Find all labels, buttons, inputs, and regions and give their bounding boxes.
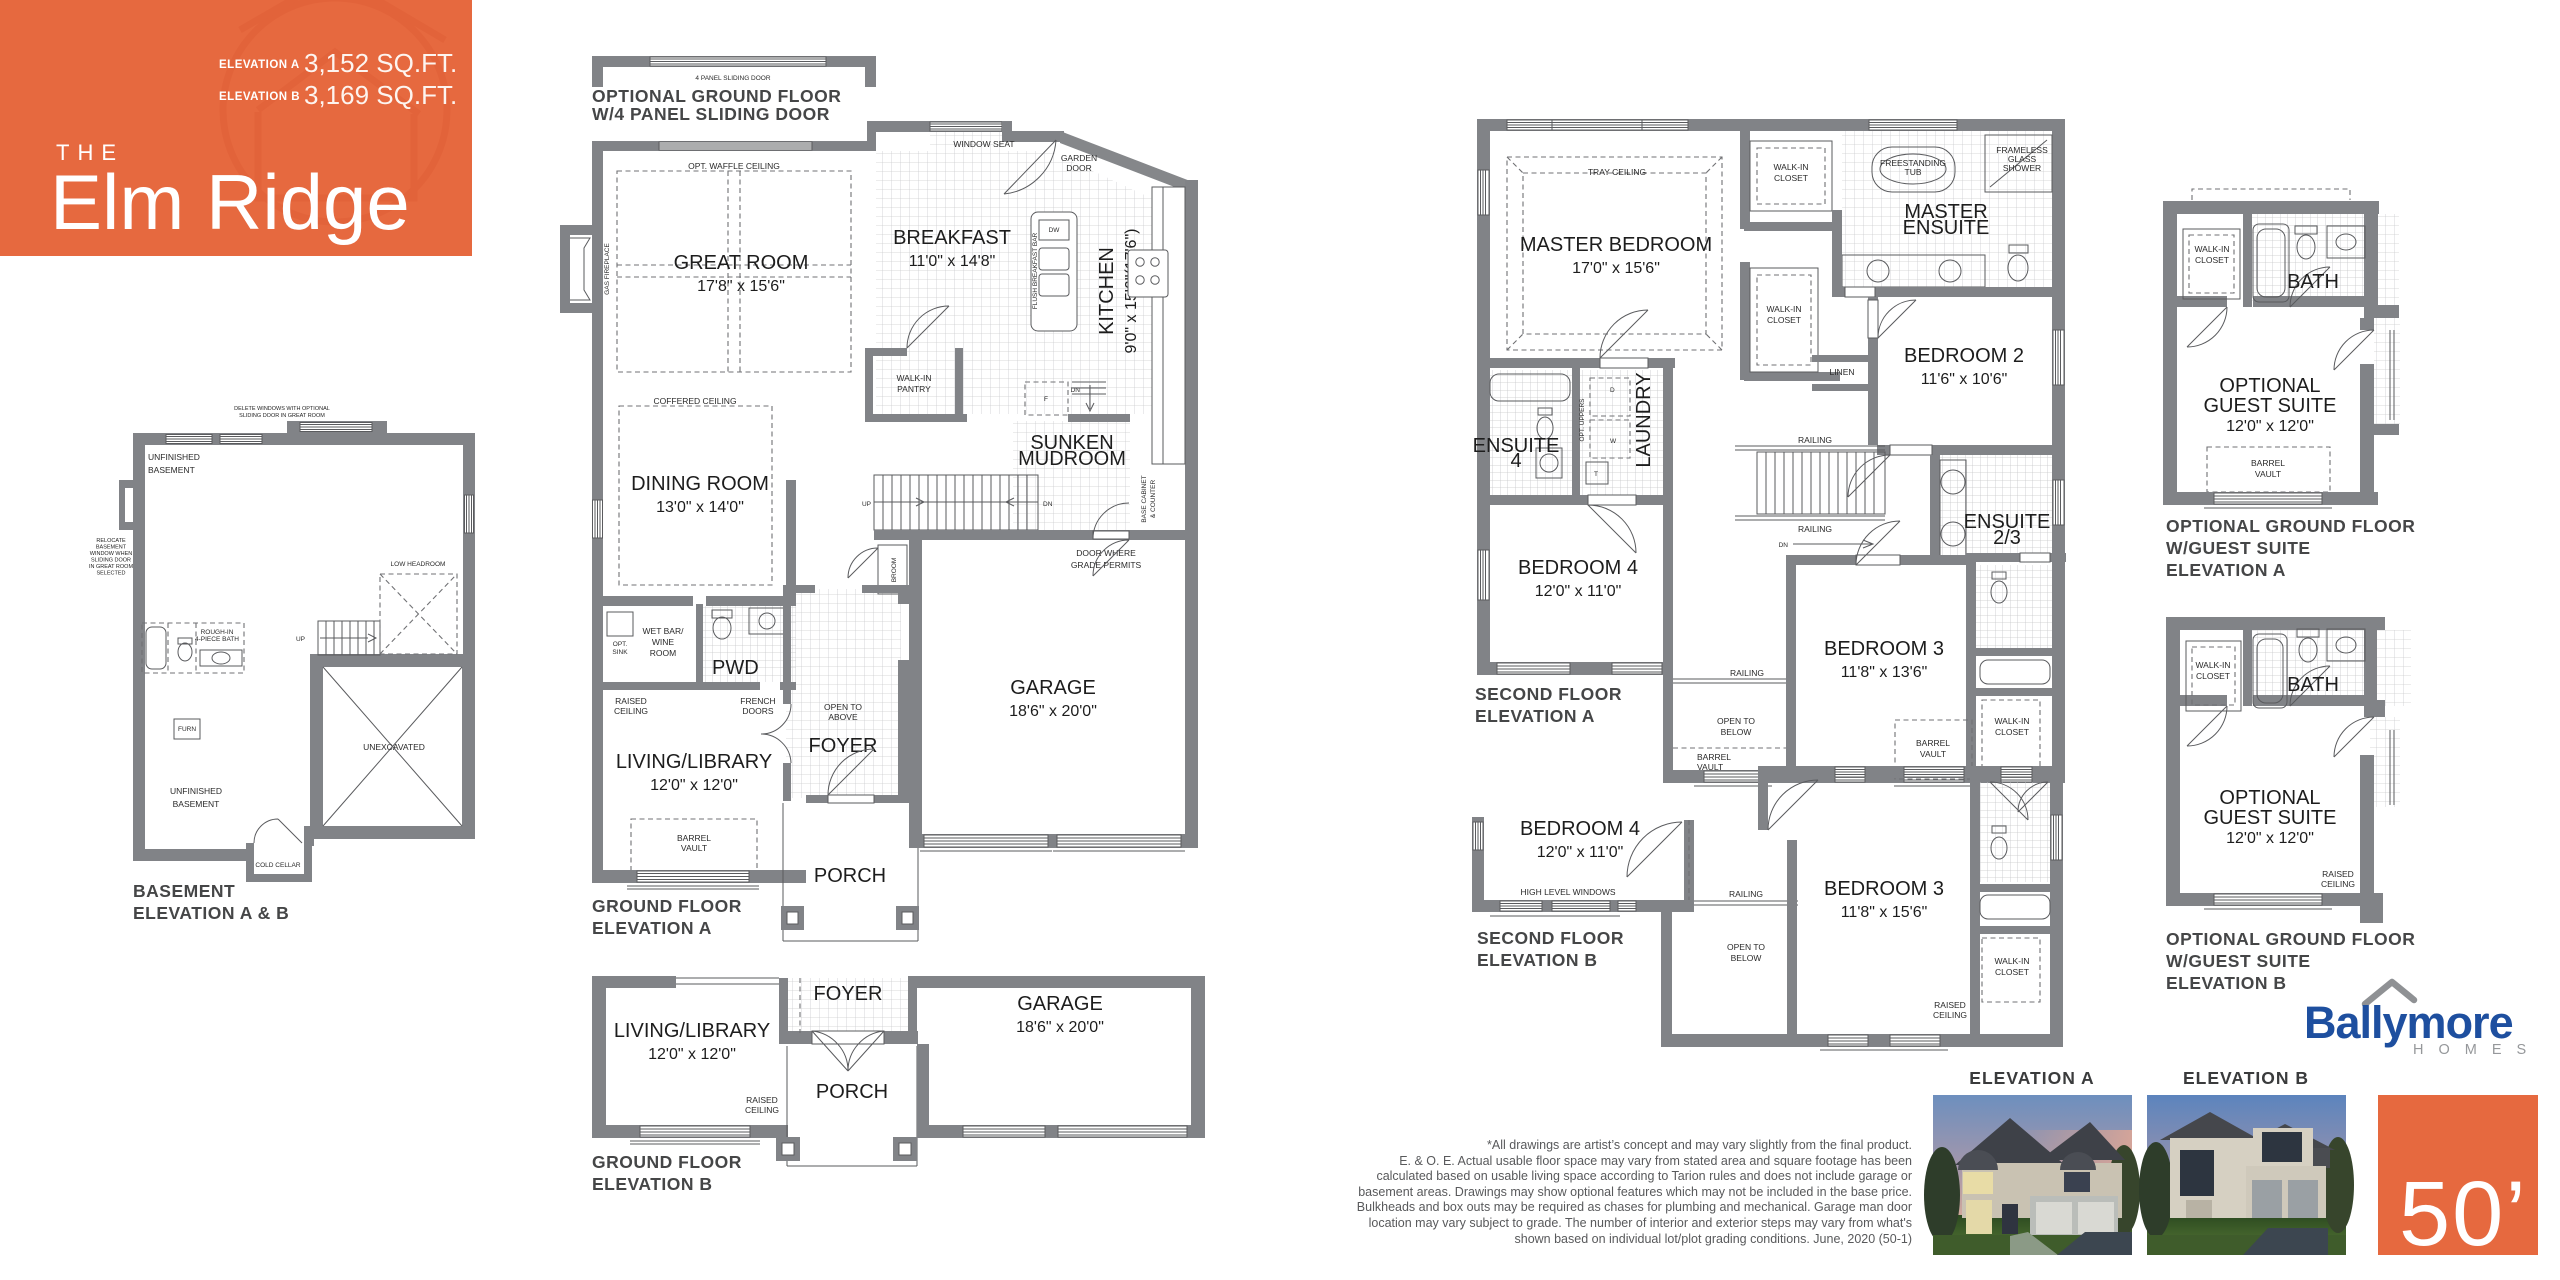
svg-text:BEDROOM 2: BEDROOM 2	[1904, 345, 2024, 367]
svg-text:OPTIONAL GROUND FLOOR: OPTIONAL GROUND FLOOR	[2166, 516, 2415, 536]
svg-text:CEILING: CEILING	[745, 1105, 779, 1115]
svg-text:BROOM: BROOM	[891, 558, 898, 583]
svg-text:BELOW: BELOW	[1731, 953, 1762, 963]
svg-text:BEDROOM 4: BEDROOM 4	[1518, 557, 1638, 579]
svg-text:RAILING: RAILING	[1798, 435, 1832, 445]
svg-text:COFFERED CEILING: COFFERED CEILING	[653, 396, 736, 406]
svg-text:WALK-IN: WALK-IN	[1994, 716, 2029, 726]
svg-text:WALK-IN: WALK-IN	[1766, 304, 1801, 314]
svg-text:BARREL: BARREL	[1697, 752, 1731, 762]
svg-text:LIVING/LIBRARY: LIVING/LIBRARY	[614, 1020, 770, 1042]
svg-text:WINDOW WHEN: WINDOW WHEN	[90, 551, 132, 557]
svg-text:RAISED: RAISED	[615, 696, 647, 706]
svg-text:CLOSET: CLOSET	[1995, 727, 2029, 737]
svg-text:SECOND FLOOR: SECOND FLOOR	[1475, 684, 1622, 704]
svg-text:BEDROOM 3: BEDROOM 3	[1824, 878, 1944, 900]
svg-text:RAILING: RAILING	[1730, 668, 1764, 678]
svg-text:D: D	[1610, 387, 1615, 394]
svg-text:BATH: BATH	[2287, 271, 2339, 293]
svg-text:ENSUITE: ENSUITE	[1903, 217, 1990, 239]
svg-text:BATH: BATH	[2287, 674, 2339, 696]
svg-text:11'6" x 10'6": 11'6" x 10'6"	[1921, 371, 2008, 388]
svg-text:MASTER BEDROOM: MASTER BEDROOM	[1520, 234, 1712, 256]
svg-text:WALK-IN: WALK-IN	[1773, 162, 1808, 172]
svg-text:GROUND FLOOR: GROUND FLOOR	[592, 896, 742, 916]
svg-text:T: T	[1594, 471, 1598, 478]
svg-text:WALK-IN: WALK-IN	[2195, 660, 2230, 670]
svg-text:CLOSET: CLOSET	[2195, 255, 2229, 265]
svg-text:SELECTED: SELECTED	[96, 571, 125, 577]
svg-text:UP: UP	[862, 501, 871, 508]
svg-text:12'0" x 12'0": 12'0" x 12'0"	[648, 1046, 736, 1063]
svg-text:ELEVATION B: ELEVATION B	[1477, 950, 1598, 970]
svg-text:VAULT: VAULT	[2255, 469, 2281, 479]
svg-text:BASEMENT: BASEMENT	[173, 799, 220, 809]
svg-text:GROUND FLOOR: GROUND FLOOR	[592, 1152, 742, 1172]
svg-text:ABOVE: ABOVE	[828, 712, 858, 722]
svg-text:OPTIONAL: OPTIONAL	[2219, 375, 2320, 397]
svg-text:4 PANEL SLIDING DOOR: 4 PANEL SLIDING DOOR	[695, 75, 770, 82]
svg-text:ROOM: ROOM	[650, 648, 676, 658]
svg-text:UNEXCAVATED: UNEXCAVATED	[363, 742, 425, 752]
svg-text:ROUGH-IN: ROUGH-IN	[201, 629, 234, 636]
svg-text:OPT. WAFFLE CEILING: OPT. WAFFLE CEILING	[688, 161, 780, 171]
svg-text:UNFINISHED: UNFINISHED	[170, 786, 222, 796]
svg-text:17'0" x 15'6": 17'0" x 15'6"	[1572, 260, 1660, 277]
svg-text:ELEVATION A: ELEVATION A	[1475, 706, 1595, 726]
svg-text:HIGH LEVEL WINDOWS: HIGH LEVEL WINDOWS	[1520, 887, 1615, 897]
svg-text:Ballymore: Ballymore	[2304, 997, 2513, 1048]
svg-text:OPTIONAL: OPTIONAL	[2219, 787, 2320, 809]
svg-text:MUDROOM: MUDROOM	[1018, 448, 1126, 470]
svg-text:SHOWER: SHOWER	[2003, 163, 2041, 173]
svg-text:TUB: TUB	[1905, 167, 1922, 177]
svg-text:17'8" x 15'6": 17'8" x 15'6"	[697, 278, 785, 295]
svg-text:CLOSET: CLOSET	[1995, 967, 2029, 977]
svg-text:LINEN: LINEN	[1829, 367, 1854, 377]
svg-text:CEILING: CEILING	[2321, 879, 2355, 889]
svg-text:GARAGE: GARAGE	[1010, 677, 1096, 699]
svg-text:W/GUEST SUITE: W/GUEST SUITE	[2166, 951, 2311, 971]
svg-text:2/3: 2/3	[1993, 527, 2021, 549]
svg-text:BASEMENT: BASEMENT	[96, 545, 127, 551]
svg-text:11'8" x 13'6": 11'8" x 13'6"	[1841, 664, 1928, 681]
svg-text:COLD CELLAR: COLD CELLAR	[255, 862, 300, 869]
svg-text:HOMES: HOMES	[2413, 1042, 2541, 1058]
svg-text:DINING ROOM: DINING ROOM	[631, 473, 769, 495]
svg-text:DOOR: DOOR	[1066, 163, 1092, 173]
svg-text:FOYER: FOYER	[809, 735, 878, 757]
svg-text:4-PIECE BATH: 4-PIECE BATH	[195, 636, 239, 643]
svg-text:12'0" x 12'0": 12'0" x 12'0"	[650, 777, 738, 794]
svg-text:11'0" x 14'8": 11'0" x 14'8"	[909, 253, 996, 270]
svg-text:WALK-IN: WALK-IN	[2194, 244, 2229, 254]
svg-text:GAS FIREPLACE: GAS FIREPLACE	[604, 243, 611, 295]
svg-text:OPT. UPPERS: OPT. UPPERS	[1579, 398, 1586, 442]
svg-text:FLUSH BREAKFAST BAR: FLUSH BREAKFAST BAR	[1032, 232, 1039, 309]
svg-text:PWD: PWD	[712, 657, 759, 679]
svg-text:CLOSET: CLOSET	[1774, 173, 1808, 183]
svg-text:WALK-IN: WALK-IN	[1994, 956, 2029, 966]
svg-text:OPEN TO: OPEN TO	[824, 702, 862, 712]
svg-text:GARAGE: GARAGE	[1017, 993, 1103, 1015]
svg-text:BARREL: BARREL	[677, 833, 711, 843]
svg-text:RAISED: RAISED	[746, 1095, 778, 1105]
svg-text:OPEN TO: OPEN TO	[1717, 716, 1755, 726]
svg-text:& COUNTER: & COUNTER	[1150, 480, 1157, 519]
svg-text:OPEN TO: OPEN TO	[1727, 942, 1765, 952]
svg-text:VAULT: VAULT	[1697, 762, 1723, 772]
svg-text:WINE: WINE	[652, 637, 675, 647]
svg-text:12'0" x 11'0": 12'0" x 11'0"	[1535, 583, 1622, 600]
svg-text:SINK: SINK	[612, 649, 628, 656]
svg-text:FOYER: FOYER	[814, 983, 883, 1005]
svg-text:CEILING: CEILING	[1933, 1010, 1967, 1020]
svg-text:4: 4	[1510, 450, 1521, 472]
svg-text:ELEVATION B: ELEVATION B	[2183, 1068, 2309, 1088]
svg-text:18'6" x 20'0": 18'6" x 20'0"	[1016, 1019, 1104, 1036]
svg-text:GUEST SUITE: GUEST SUITE	[2204, 395, 2337, 417]
svg-text:CLOSET: CLOSET	[2196, 671, 2230, 681]
svg-text:VAULT: VAULT	[681, 843, 707, 853]
svg-text:GARDEN: GARDEN	[1061, 153, 1097, 163]
svg-text:FRENCH: FRENCH	[740, 696, 775, 706]
svg-text:BEDROOM 3: BEDROOM 3	[1824, 638, 1944, 660]
svg-text:DOOR WHERE: DOOR WHERE	[1076, 548, 1136, 558]
svg-text:RAILING: RAILING	[1798, 524, 1832, 534]
svg-text:SLIDING DOOR: SLIDING DOOR	[91, 558, 131, 564]
svg-text:18'6" x 20'0": 18'6" x 20'0"	[1009, 703, 1097, 720]
svg-text:W: W	[1610, 438, 1617, 445]
svg-text:GREAT ROOM: GREAT ROOM	[674, 252, 809, 274]
svg-text:LIVING/LIBRARY: LIVING/LIBRARY	[616, 751, 772, 773]
svg-text:12'0" x 12'0": 12'0" x 12'0"	[2226, 418, 2314, 435]
svg-text:50’: 50’	[2399, 1163, 2528, 1265]
svg-text:RAILING: RAILING	[1729, 889, 1763, 899]
svg-text:TRAY CEILING: TRAY CEILING	[1588, 167, 1646, 177]
svg-text:SECOND FLOOR: SECOND FLOOR	[1477, 928, 1624, 948]
svg-text:RELOCATE: RELOCATE	[96, 538, 126, 544]
svg-text:SLIDING DOOR IN GREAT ROOM: SLIDING DOOR IN GREAT ROOM	[239, 413, 325, 419]
svg-text:WET BAR/: WET BAR/	[643, 626, 685, 636]
svg-text:RAISED: RAISED	[2322, 869, 2354, 879]
svg-text:BELOW: BELOW	[1721, 727, 1752, 737]
svg-text:ELEVATION B: ELEVATION B	[2166, 973, 2287, 993]
svg-text:OPT.: OPT.	[613, 641, 628, 648]
svg-text:PORCH: PORCH	[816, 1081, 888, 1103]
svg-text:UP: UP	[296, 636, 305, 643]
svg-text:ELEVATION A: ELEVATION A	[592, 918, 712, 938]
svg-text:DN: DN	[1779, 542, 1789, 549]
svg-text:F: F	[1044, 396, 1048, 403]
svg-text:WINDOW SEAT: WINDOW SEAT	[953, 139, 1014, 149]
svg-text:ELEVATION A & B: ELEVATION A & B	[133, 903, 289, 923]
svg-text:IN GREAT ROOM: IN GREAT ROOM	[89, 564, 134, 570]
svg-text:BARREL: BARREL	[2251, 458, 2285, 468]
svg-text:BEDROOM 4: BEDROOM 4	[1520, 818, 1640, 840]
svg-text:12'0" x 12'0": 12'0" x 12'0"	[2226, 830, 2314, 847]
svg-text:PORCH: PORCH	[814, 865, 886, 887]
svg-text:BARREL: BARREL	[1916, 738, 1950, 748]
svg-text:OPTIONAL GROUND FLOOR: OPTIONAL GROUND FLOOR	[2166, 929, 2415, 949]
svg-text:UNFINISHED: UNFINISHED	[148, 452, 200, 462]
svg-text:ELEVATION B: ELEVATION B	[592, 1174, 713, 1194]
svg-text:BASE CABINET: BASE CABINET	[1141, 475, 1148, 522]
svg-text:BASEMENT: BASEMENT	[148, 465, 195, 475]
svg-text:OPTIONAL GROUND FLOOR: OPTIONAL GROUND FLOOR	[592, 86, 841, 106]
svg-text:LOW HEADROOM: LOW HEADROOM	[391, 561, 446, 568]
svg-text:FURN: FURN	[178, 726, 196, 733]
svg-text:VAULT: VAULT	[1920, 749, 1946, 759]
svg-text:RAISED: RAISED	[1934, 1000, 1966, 1010]
svg-text:W/4 PANEL SLIDING DOOR: W/4 PANEL SLIDING DOOR	[592, 104, 830, 124]
svg-text:W/GUEST SUITE: W/GUEST SUITE	[2166, 538, 2311, 558]
svg-text:ELEVATION A: ELEVATION A	[2166, 560, 2286, 580]
svg-text:12'0" x 11'0": 12'0" x 11'0"	[1537, 844, 1624, 861]
svg-text:DOORS: DOORS	[742, 706, 774, 716]
svg-text:KITCHEN: KITCHEN	[1096, 247, 1118, 335]
svg-text:DN: DN	[1043, 501, 1053, 508]
svg-text:ELEVATION A: ELEVATION A	[1969, 1068, 2094, 1088]
svg-text:DW: DW	[1049, 227, 1061, 234]
svg-text:PANTRY: PANTRY	[897, 384, 931, 394]
svg-text:LAUNDRY: LAUNDRY	[1633, 372, 1655, 467]
svg-text:CLOSET: CLOSET	[1767, 315, 1801, 325]
svg-text:GRADE PERMITS: GRADE PERMITS	[1071, 560, 1142, 570]
svg-text:BASEMENT: BASEMENT	[133, 881, 235, 901]
svg-text:WALK-IN: WALK-IN	[896, 373, 931, 383]
svg-text:13'0" x 14'0": 13'0" x 14'0"	[656, 499, 744, 516]
svg-text:11'8" x 15'6": 11'8" x 15'6"	[1841, 904, 1928, 921]
svg-text:BREAKFAST: BREAKFAST	[893, 227, 1011, 249]
svg-text:CEILING: CEILING	[614, 706, 648, 716]
svg-text:GUEST SUITE: GUEST SUITE	[2204, 807, 2337, 829]
svg-text:DELETE WINDOWS WITH OPTIONAL: DELETE WINDOWS WITH OPTIONAL	[234, 406, 330, 412]
